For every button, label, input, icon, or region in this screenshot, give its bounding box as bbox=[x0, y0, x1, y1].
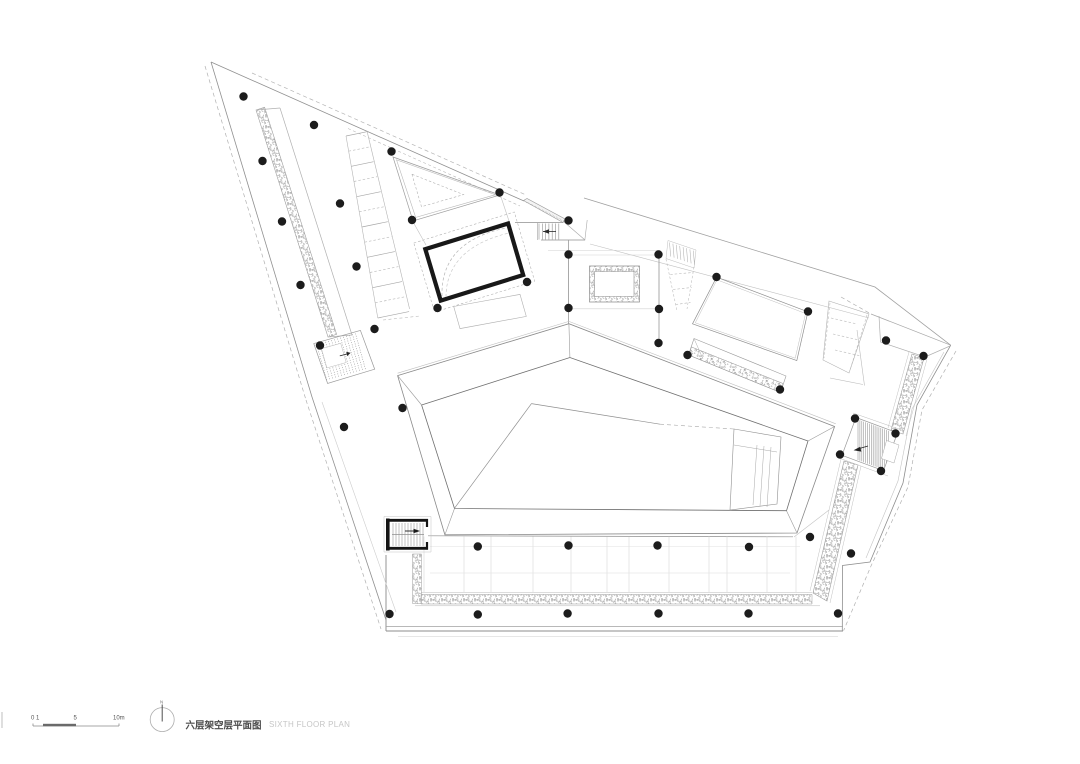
svg-text:六层架空层平面图: 六层架空层平面图 bbox=[186, 720, 262, 732]
svg-text:SIXTH FLOOR PLAN: SIXTH FLOOR PLAN bbox=[269, 720, 350, 729]
svg-text:N: N bbox=[160, 700, 163, 705]
svg-text:5: 5 bbox=[74, 716, 78, 722]
svg-text:0 1: 0 1 bbox=[31, 716, 40, 722]
svg-text:10m: 10m bbox=[113, 716, 125, 722]
